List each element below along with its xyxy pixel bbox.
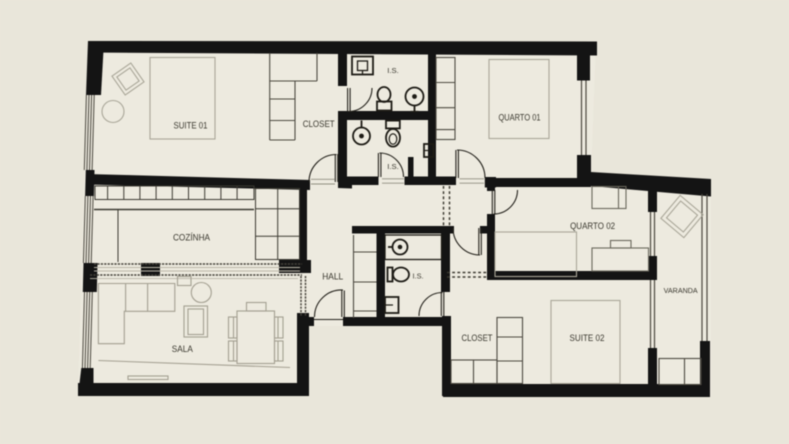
svg-text:VARANDA: VARANDA bbox=[664, 288, 698, 295]
svg-text:CLOSET: CLOSET bbox=[303, 119, 336, 129]
svg-text:SUITE 01: SUITE 01 bbox=[174, 121, 208, 131]
svg-text:QUARTO 01: QUARTO 01 bbox=[499, 113, 541, 123]
svg-text:I.S.: I.S. bbox=[387, 162, 399, 171]
svg-text:HALL: HALL bbox=[322, 271, 343, 281]
svg-text:I.S.: I.S. bbox=[387, 66, 399, 75]
svg-text:SUITE 02: SUITE 02 bbox=[570, 333, 605, 343]
svg-text:I.S.: I.S. bbox=[413, 272, 424, 281]
svg-text:COZÍNHA: COZÍNHA bbox=[173, 233, 210, 243]
svg-text:CLOSET: CLOSET bbox=[462, 333, 494, 343]
svg-text:QUARTO 02: QUARTO 02 bbox=[570, 221, 615, 231]
svg-text:SALA: SALA bbox=[172, 344, 193, 354]
